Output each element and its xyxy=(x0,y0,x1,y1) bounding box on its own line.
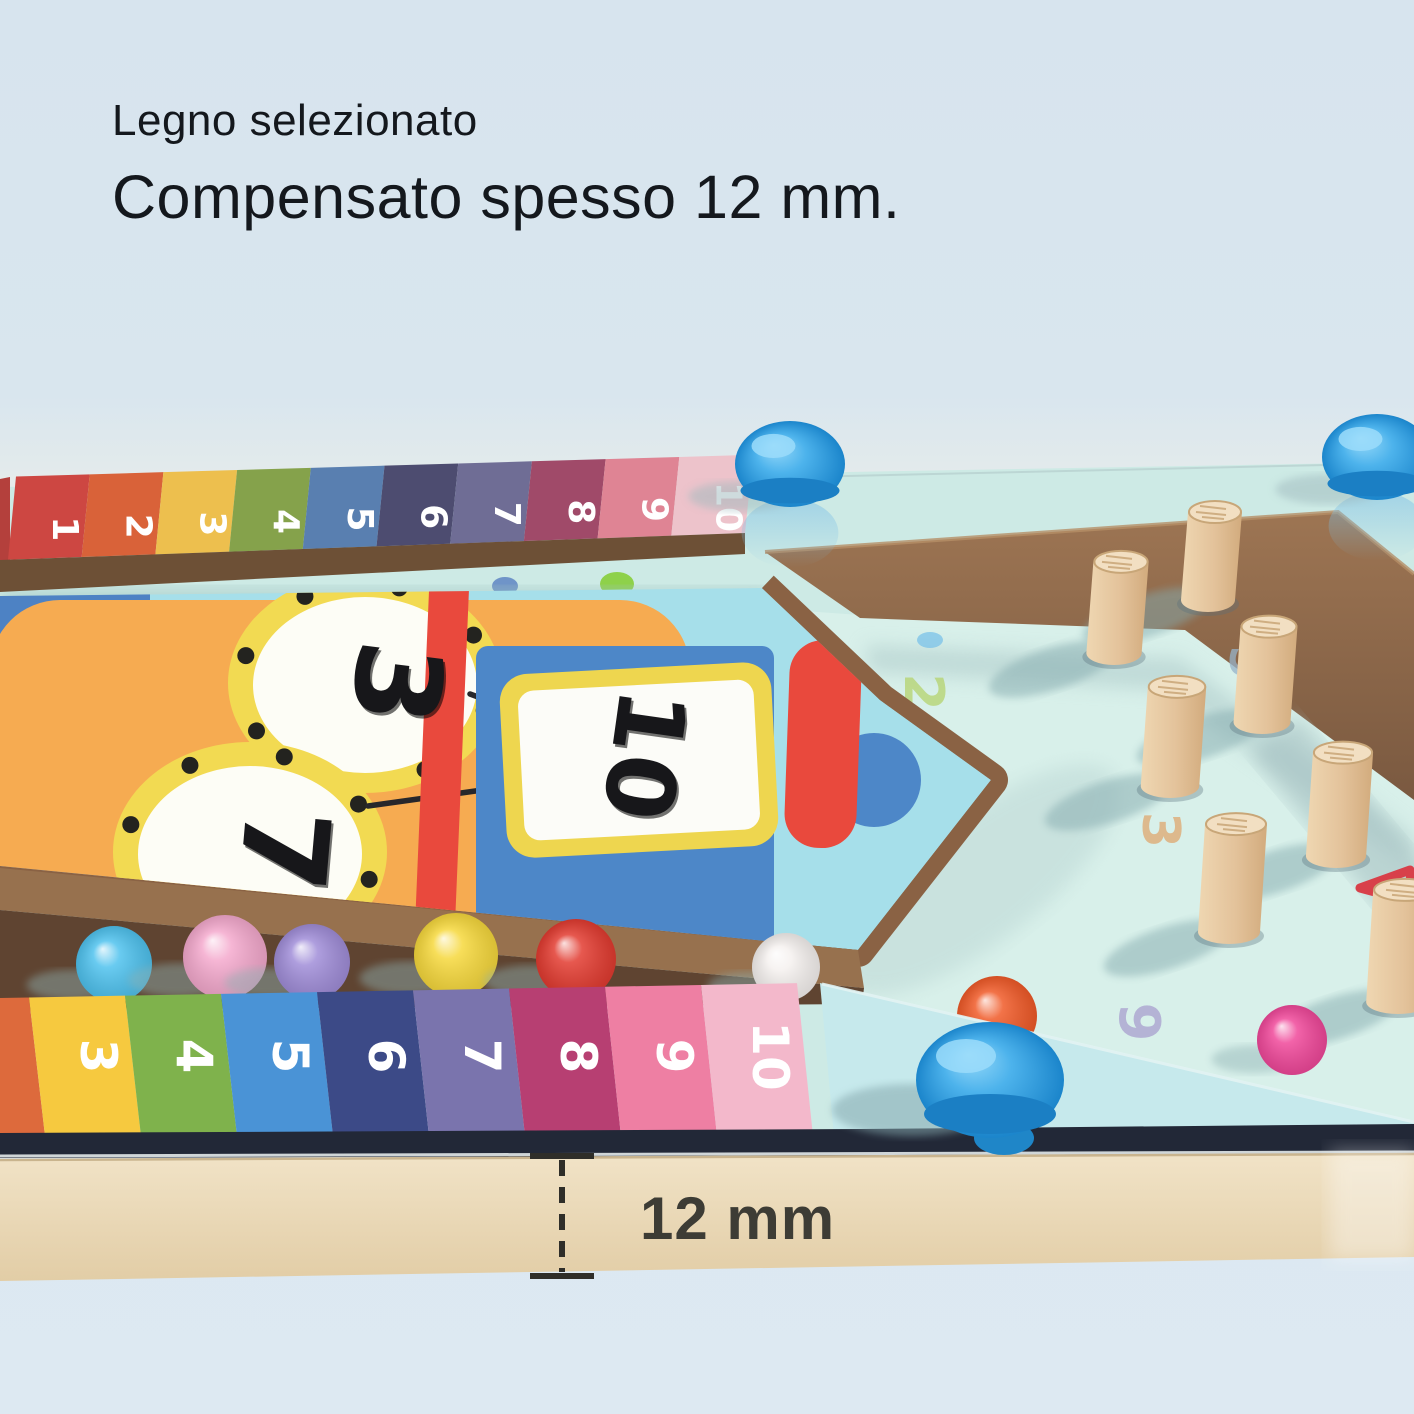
clay-number: 3 xyxy=(323,634,470,732)
top-scale-number: 8 xyxy=(560,499,601,524)
bottom-scale-number: 8 xyxy=(549,1039,607,1074)
header: Legno selezionato Compensato spesso 12 m… xyxy=(112,96,900,232)
bottom-scale-number: 10 xyxy=(741,1021,799,1091)
printed-number: 3 xyxy=(1130,812,1190,848)
bottom-number-scale: 345678910 xyxy=(0,983,813,1136)
top-scale-number: 2 xyxy=(118,514,159,539)
thickness-label: 12 mm xyxy=(640,1184,835,1253)
bottom-scale-number: 7 xyxy=(453,1039,511,1074)
header-subtitle: Legno selezionato xyxy=(112,96,900,146)
clay-number: 10 xyxy=(580,682,706,827)
bottom-scale-number: 6 xyxy=(357,1039,415,1074)
bottom-scale-number: 9 xyxy=(645,1039,703,1074)
top-scale-number: 1 xyxy=(44,516,85,541)
bottom-scale-number: 5 xyxy=(261,1039,319,1074)
top-scale-number: 4 xyxy=(265,509,306,534)
top-scale-number: 9 xyxy=(634,497,675,522)
header-title: Compensato spesso 12 mm. xyxy=(112,162,900,232)
printed-number: 9 xyxy=(1106,1003,1171,1042)
top-scale-number: 3 xyxy=(191,511,232,536)
top-scale-number: 6 xyxy=(413,504,454,529)
droplet xyxy=(917,632,943,648)
top-scale-number: 5 xyxy=(339,507,380,532)
bottom-scale-number: 3 xyxy=(69,1039,127,1074)
clay-number: 7 xyxy=(212,803,357,897)
top-scale-number: 7 xyxy=(486,502,527,527)
bottom-scale-number: 4 xyxy=(165,1039,223,1074)
